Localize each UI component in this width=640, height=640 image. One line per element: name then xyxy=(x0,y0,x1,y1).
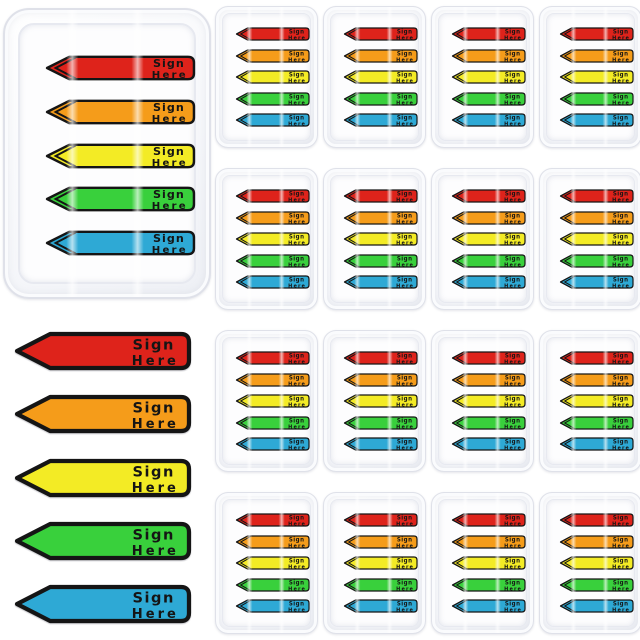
flag-slot: SignHere xyxy=(559,555,635,571)
flag-slot: SignHere xyxy=(451,274,527,290)
dispenser-flags: SignHereSignHereSignHereSignHereSignHere xyxy=(235,512,311,614)
flag-slot: SignHere xyxy=(343,274,419,290)
flag-label-line2: Here xyxy=(504,283,522,289)
flag-label-line2: Here xyxy=(504,402,522,408)
flag-label-line1: Sign xyxy=(397,418,413,424)
sign-here-flag-red: SignHere xyxy=(451,26,527,42)
flag-label-line1: Sign xyxy=(289,51,305,57)
flag-label-line2: Here xyxy=(288,564,306,570)
flag-label-line2: Here xyxy=(132,607,179,622)
sign-here-flag-red: SignHere xyxy=(451,188,527,204)
flag-label-line2: Here xyxy=(396,402,414,408)
flag-slot: SignHere xyxy=(235,253,311,269)
flag-label-line1: Sign xyxy=(289,515,305,521)
dispenser-flags: SignHereSignHereSignHereSignHereSignHere xyxy=(235,350,311,452)
flag-slot: SignHere xyxy=(451,26,527,42)
sign-here-flag-yellow: SignHere xyxy=(559,231,635,247)
flag-label-line1: Sign xyxy=(505,277,521,283)
sign-here-flag-orange: SignHere xyxy=(235,372,311,388)
flag-slot: SignHere xyxy=(235,350,311,366)
flag-slot: SignHere xyxy=(559,26,635,42)
flag-label-line1: Sign xyxy=(289,537,305,543)
flag-label-line1: Sign xyxy=(613,51,629,57)
dispenser-flags: SignHereSignHereSignHereSignHereSignHere xyxy=(235,26,311,128)
flag-label-line2: Here xyxy=(612,121,630,127)
flag-slot: SignHere xyxy=(451,91,527,107)
flag-slot: SignHere xyxy=(451,112,527,128)
flag-slot: SignHere xyxy=(451,555,527,571)
flag-label-line2: Here xyxy=(288,586,306,592)
dispenser-flags: SignHereSignHereSignHereSignHereSignHere xyxy=(235,188,311,290)
flag-label-line1: Sign xyxy=(397,72,413,78)
flag-slot: SignHere xyxy=(343,534,419,550)
flag-label-line2: Here xyxy=(396,262,414,268)
flag-label-line1: Sign xyxy=(613,234,629,240)
flag-slot: SignHere xyxy=(451,512,527,528)
dispenser-flags: SignHereSignHereSignHereSignHereSignHere xyxy=(343,350,419,452)
flag-slot: SignHere xyxy=(235,188,311,204)
flag-slot: SignHere xyxy=(451,48,527,64)
flag-label-line1: Sign xyxy=(153,101,185,114)
dispenser-flags: SignHereSignHereSignHereSignHereSignHere xyxy=(343,26,419,128)
sign-here-flag-green: SignHere xyxy=(559,415,635,431)
flag-label-line1: Sign xyxy=(613,601,629,607)
flag-slot: SignHere xyxy=(235,210,311,226)
sign-here-flag-orange: SignHere xyxy=(559,372,635,388)
flag-label-line1: Sign xyxy=(505,234,521,240)
flag-slot: SignHere xyxy=(559,69,635,85)
flag-label-line2: Here xyxy=(396,35,414,41)
sign-here-flag-orange: SignHere xyxy=(559,48,635,64)
sign-here-flag-orange: SignHere xyxy=(44,97,198,127)
sign-here-flag-blue: SignHere xyxy=(559,598,635,614)
sign-here-flag-red: SignHere xyxy=(451,512,527,528)
flag-label-line1: Sign xyxy=(613,72,629,78)
flag-label-line2: Here xyxy=(288,262,306,268)
flag-label-line2: Here xyxy=(396,586,414,592)
dispenser-flags: SignHereSignHereSignHereSignHereSignHere xyxy=(343,512,419,614)
flag-slot: SignHere xyxy=(44,141,198,171)
flag-label-line1: Sign xyxy=(289,115,305,121)
dispenser-flags: SignHereSignHereSignHereSignHereSignHere xyxy=(559,512,635,614)
sign-here-flag-green: SignHere xyxy=(343,415,419,431)
flag-slot: SignHere xyxy=(343,555,419,571)
flag-slot: SignHere xyxy=(235,512,311,528)
flag-label-line1: Sign xyxy=(613,191,629,197)
dispenser-tray: SignHereSignHereSignHereSignHereSignHere xyxy=(330,13,419,141)
flag-label-line1: Sign xyxy=(289,353,305,359)
flag-label-line1: Sign xyxy=(133,464,175,480)
sign-here-flag-orange: SignHere xyxy=(235,534,311,550)
dispenser-tray: SignHereSignHereSignHereSignHereSignHere xyxy=(438,337,527,465)
flag-label-line1: Sign xyxy=(505,580,521,586)
sign-here-flag-red: SignHere xyxy=(235,512,311,528)
flag-dispenser-box-16: SignHereSignHereSignHereSignHereSignHere xyxy=(539,492,640,634)
flag-slot: SignHere xyxy=(559,393,635,409)
flag-label-line2: Here xyxy=(612,381,630,387)
flag-label-line2: Here xyxy=(504,219,522,225)
flag-label-line1: Sign xyxy=(613,439,629,445)
flag-label-line2: Here xyxy=(504,445,522,451)
flag-slot: SignHere xyxy=(343,253,419,269)
sign-here-flag-red: SignHere xyxy=(343,188,419,204)
sign-here-flag-red: SignHere xyxy=(343,26,419,42)
flag-label-line2: Here xyxy=(504,607,522,613)
dispenser-tray: SignHereSignHereSignHereSignHereSignHere xyxy=(222,175,311,303)
flag-label-line2: Here xyxy=(288,100,306,106)
flag-slot: SignHere xyxy=(44,184,198,214)
flag-dispenser-box-1: SignHereSignHereSignHereSignHereSignHere xyxy=(215,6,318,148)
flag-label-line1: Sign xyxy=(613,537,629,543)
sign-here-flag-blue: SignHere xyxy=(559,274,635,290)
flag-label-line2: Here xyxy=(612,607,630,613)
flag-label-line1: Sign xyxy=(397,191,413,197)
flag-label-line1: Sign xyxy=(397,515,413,521)
flag-slot: SignHere xyxy=(343,393,419,409)
large-dispenser-tray: SignHereSignHereSignHereSignHereSignHere xyxy=(18,23,196,284)
dispenser-flags: SignHereSignHereSignHereSignHereSignHere xyxy=(343,188,419,290)
flag-slot: SignHere xyxy=(559,577,635,593)
flag-label-line2: Here xyxy=(152,114,188,125)
flag-label-line2: Here xyxy=(612,586,630,592)
flag-dispenser-box-5: SignHereSignHereSignHereSignHereSignHere xyxy=(215,168,318,310)
flag-label-line2: Here xyxy=(396,564,414,570)
flag-label-line2: Here xyxy=(612,359,630,365)
flag-label-line1: Sign xyxy=(133,338,175,354)
flag-dispenser-box-4: SignHereSignHereSignHereSignHereSignHere xyxy=(539,6,640,148)
flag-label-line1: Sign xyxy=(133,527,175,543)
flag-label-line2: Here xyxy=(288,78,306,84)
sign-here-flag-yellow: SignHere xyxy=(235,69,311,85)
flag-label-line1: Sign xyxy=(505,418,521,424)
dispenser-flags: SignHereSignHereSignHereSignHereSignHere xyxy=(451,188,527,290)
sign-here-flag-orange: SignHere xyxy=(343,48,419,64)
sign-here-flag-green: SignHere xyxy=(343,253,419,269)
flag-slot: SignHere xyxy=(343,598,419,614)
flag-slot: SignHere xyxy=(235,534,311,550)
flag-slot: SignHere xyxy=(235,26,311,42)
flag-slot: SignHere xyxy=(559,91,635,107)
sign-here-flag-red: SignHere xyxy=(343,512,419,528)
flag-label-line1: Sign xyxy=(505,29,521,35)
flag-label-line1: Sign xyxy=(397,375,413,381)
flag-label-line1: Sign xyxy=(613,29,629,35)
sign-here-flag-blue: SignHere xyxy=(451,598,527,614)
flag-label-line2: Here xyxy=(504,262,522,268)
flag-slot: SignHere xyxy=(559,188,635,204)
flag-slot: SignHere xyxy=(559,48,635,64)
flag-label-line1: Sign xyxy=(613,375,629,381)
flag-label-line1: Sign xyxy=(613,277,629,283)
dispenser-flags: SignHereSignHereSignHereSignHereSignHere xyxy=(451,512,527,614)
flag-label-line2: Here xyxy=(612,197,630,203)
flag-slot: SignHere xyxy=(559,350,635,366)
flag-slot: SignHere xyxy=(235,112,311,128)
flag-label-line2: Here xyxy=(132,354,179,369)
flag-label-line1: Sign xyxy=(397,213,413,219)
flag-dispenser-box-7: SignHereSignHereSignHereSignHereSignHere xyxy=(431,168,534,310)
flag-label-line2: Here xyxy=(288,381,306,387)
flag-label-line2: Here xyxy=(612,521,630,527)
flag-slot: SignHere xyxy=(44,97,198,127)
flag-slot: SignHere xyxy=(559,372,635,388)
flag-label-line2: Here xyxy=(396,543,414,549)
flag-label-line2: Here xyxy=(396,78,414,84)
flag-slot: SignHere xyxy=(235,274,311,290)
dispenser-tray: SignHereSignHereSignHereSignHereSignHere xyxy=(438,13,527,141)
dispenser-flags: SignHereSignHereSignHereSignHereSignHere xyxy=(559,350,635,452)
flag-label-line1: Sign xyxy=(397,115,413,121)
dispenser-tray: SignHereSignHereSignHereSignHereSignHere xyxy=(330,499,419,627)
flag-dispenser-box-2: SignHereSignHereSignHereSignHereSignHere xyxy=(323,6,426,148)
flag-label-line2: Here xyxy=(504,381,522,387)
flag-slot: SignHere xyxy=(559,210,635,226)
sign-here-flag-blue: SignHere xyxy=(235,598,311,614)
flag-slot: SignHere xyxy=(343,415,419,431)
sign-here-flag-yellow: SignHere xyxy=(451,393,527,409)
dispenser-tray: SignHereSignHereSignHereSignHereSignHere xyxy=(330,175,419,303)
flag-label-line2: Here xyxy=(504,564,522,570)
flag-label-line1: Sign xyxy=(153,145,185,158)
flag-slot: SignHere xyxy=(235,415,311,431)
flag-slot: SignHere xyxy=(451,69,527,85)
sign-here-flag-green: SignHere xyxy=(235,91,311,107)
flag-slot: SignHere xyxy=(44,228,198,258)
flag-slot: SignHere xyxy=(343,91,419,107)
loose-sign-here-flag-red: SignHere xyxy=(14,331,193,371)
flag-label-line2: Here xyxy=(288,35,306,41)
flag-label-line2: Here xyxy=(504,121,522,127)
sign-here-flag-yellow: SignHere xyxy=(343,555,419,571)
sign-here-flag-yellow: SignHere xyxy=(235,393,311,409)
flag-label-line2: Here xyxy=(396,57,414,63)
flag-label-line1: Sign xyxy=(613,94,629,100)
flag-label-line2: Here xyxy=(288,402,306,408)
flag-slot: SignHere xyxy=(559,274,635,290)
dispenser-tray: SignHereSignHereSignHereSignHereSignHere xyxy=(546,175,635,303)
flag-label-line2: Here xyxy=(612,240,630,246)
flag-label-line2: Here xyxy=(504,197,522,203)
sign-here-flag-blue: SignHere xyxy=(44,228,198,258)
flag-slot: SignHere xyxy=(343,350,419,366)
flag-label-line1: Sign xyxy=(133,401,175,417)
sign-here-flag-yellow: SignHere xyxy=(343,69,419,85)
flag-label-line2: Here xyxy=(612,564,630,570)
sign-here-flag-green: SignHere xyxy=(451,91,527,107)
sign-here-flag-yellow: SignHere xyxy=(559,69,635,85)
flag-slot: SignHere xyxy=(343,577,419,593)
dispenser-flags: SignHereSignHereSignHereSignHereSignHere xyxy=(451,350,527,452)
flag-dispenser-box-11: SignHereSignHereSignHereSignHereSignHere xyxy=(431,330,534,472)
sign-here-flag-green: SignHere xyxy=(235,577,311,593)
flag-slot: SignHere xyxy=(235,372,311,388)
flag-label-line1: Sign xyxy=(613,353,629,359)
sign-here-flag-green: SignHere xyxy=(44,184,198,214)
sign-here-flag-green: SignHere xyxy=(343,91,419,107)
sign-here-flag-red: SignHere xyxy=(559,512,635,528)
dispenser-flags: SignHereSignHereSignHereSignHereSignHere xyxy=(559,188,635,290)
flag-label-line1: Sign xyxy=(505,256,521,262)
flag-label-line1: Sign xyxy=(289,29,305,35)
sign-here-flag-green: SignHere xyxy=(559,91,635,107)
flag-label-line2: Here xyxy=(288,197,306,203)
loose-sign-here-flag-orange: SignHere xyxy=(14,394,193,434)
flag-slot: SignHere xyxy=(343,436,419,452)
flag-label-line1: Sign xyxy=(153,188,185,201)
flag-label-line1: Sign xyxy=(289,256,305,262)
sign-here-flag-orange: SignHere xyxy=(343,534,419,550)
flag-label-line2: Here xyxy=(288,57,306,63)
sign-here-flag-orange: SignHere xyxy=(235,48,311,64)
flag-label-line2: Here xyxy=(152,202,188,213)
dispenser-tray: SignHereSignHereSignHereSignHereSignHere xyxy=(222,13,311,141)
flag-slot: SignHere xyxy=(235,555,311,571)
flag-label-line2: Here xyxy=(288,521,306,527)
flag-label-line2: Here xyxy=(132,481,179,496)
sign-here-flag-yellow: SignHere xyxy=(451,555,527,571)
flag-label-line2: Here xyxy=(396,607,414,613)
flag-label-line2: Here xyxy=(288,424,306,430)
sign-here-flag-red: SignHere xyxy=(235,188,311,204)
flag-label-line1: Sign xyxy=(153,232,185,245)
flag-dispenser-box-13: SignHereSignHereSignHereSignHereSignHere xyxy=(215,492,318,634)
flag-label-line1: Sign xyxy=(505,72,521,78)
flag-label-line2: Here xyxy=(396,381,414,387)
flag-label-line2: Here xyxy=(396,521,414,527)
sign-here-flag-green: SignHere xyxy=(451,577,527,593)
flag-slot: SignHere xyxy=(559,231,635,247)
flag-label-line2: Here xyxy=(396,100,414,106)
flag-label-line2: Here xyxy=(504,78,522,84)
sign-here-flag-blue: SignHere xyxy=(559,436,635,452)
flag-label-line2: Here xyxy=(612,402,630,408)
flag-label-line2: Here xyxy=(612,262,630,268)
flag-label-line1: Sign xyxy=(505,396,521,402)
flag-label-line2: Here xyxy=(504,543,522,549)
flag-slot: SignHere xyxy=(343,188,419,204)
flag-slot: SignHere xyxy=(235,393,311,409)
sign-here-flag-orange: SignHere xyxy=(343,210,419,226)
loose-sign-here-flag-yellow: SignHere xyxy=(14,458,193,498)
flag-slot: SignHere xyxy=(559,253,635,269)
flag-dispenser-box-10: SignHereSignHereSignHereSignHereSignHere xyxy=(323,330,426,472)
sign-here-flag-blue: SignHere xyxy=(451,274,527,290)
sign-here-flag-blue: SignHere xyxy=(343,598,419,614)
flag-slot: SignHere xyxy=(343,372,419,388)
sign-here-flag-red: SignHere xyxy=(451,350,527,366)
flag-label-line1: Sign xyxy=(289,418,305,424)
dispenser-tray: SignHereSignHereSignHereSignHereSignHere xyxy=(438,499,527,627)
flag-label-line2: Here xyxy=(288,543,306,549)
sign-here-flag-green: SignHere xyxy=(343,577,419,593)
flag-label-line2: Here xyxy=(396,197,414,203)
flag-label-line1: Sign xyxy=(397,537,413,543)
sign-here-flag-blue: SignHere xyxy=(343,112,419,128)
flag-slot: SignHere xyxy=(559,512,635,528)
sign-here-flag-yellow: SignHere xyxy=(451,69,527,85)
flag-slot: SignHere xyxy=(343,69,419,85)
flag-label-line1: Sign xyxy=(505,515,521,521)
sign-here-flag-red: SignHere xyxy=(343,350,419,366)
flag-label-line2: Here xyxy=(288,219,306,225)
flag-dispenser-box-15: SignHereSignHereSignHereSignHereSignHere xyxy=(431,492,534,634)
flag-label-line1: Sign xyxy=(397,94,413,100)
flag-label-line1: Sign xyxy=(397,439,413,445)
flag-label-line2: Here xyxy=(132,417,179,432)
flag-label-line1: Sign xyxy=(289,191,305,197)
sign-here-flag-red: SignHere xyxy=(559,26,635,42)
sign-here-flag-yellow: SignHere xyxy=(235,231,311,247)
flag-label-line1: Sign xyxy=(289,396,305,402)
flag-label-line2: Here xyxy=(504,57,522,63)
flag-slot: SignHere xyxy=(343,26,419,42)
flag-label-line2: Here xyxy=(396,424,414,430)
sign-here-flag-green: SignHere xyxy=(451,415,527,431)
dispenser-tray: SignHereSignHereSignHereSignHereSignHere xyxy=(546,13,635,141)
flag-label-line1: Sign xyxy=(289,601,305,607)
sign-here-flag-blue: SignHere xyxy=(451,112,527,128)
flag-label-line1: Sign xyxy=(505,94,521,100)
sign-here-flag-green: SignHere xyxy=(559,577,635,593)
product-photo: SignHereSignHereSignHereSignHereSignHere… xyxy=(0,0,640,640)
flag-label-line2: Here xyxy=(288,359,306,365)
flag-label-line1: Sign xyxy=(397,234,413,240)
sign-here-flag-orange: SignHere xyxy=(451,534,527,550)
flag-label-line1: Sign xyxy=(289,72,305,78)
flag-label-line1: Sign xyxy=(289,94,305,100)
flag-label-line2: Here xyxy=(504,586,522,592)
loose-sign-here-flag-green: SignHere xyxy=(14,521,193,561)
flag-slot: SignHere xyxy=(343,231,419,247)
dispenser-flags: SignHereSignHereSignHereSignHereSignHere xyxy=(559,26,635,128)
flag-slot: SignHere xyxy=(451,372,527,388)
flag-label-line1: Sign xyxy=(397,353,413,359)
flag-label-line1: Sign xyxy=(505,115,521,121)
flag-label-line1: Sign xyxy=(505,375,521,381)
sign-here-flag-red: SignHere xyxy=(235,26,311,42)
flag-label-line1: Sign xyxy=(289,213,305,219)
flag-slot: SignHere xyxy=(44,53,198,83)
sign-here-flag-red: SignHere xyxy=(559,188,635,204)
sign-here-flag-green: SignHere xyxy=(451,253,527,269)
flag-slot: SignHere xyxy=(451,231,527,247)
flag-dispenser-box-9: SignHereSignHereSignHereSignHereSignHere xyxy=(215,330,318,472)
flag-slot: SignHere xyxy=(451,598,527,614)
loose-sign-here-flag-blue: SignHere xyxy=(14,584,193,624)
flag-slot: SignHere xyxy=(451,188,527,204)
sign-here-flag-blue: SignHere xyxy=(451,436,527,452)
flag-slot: SignHere xyxy=(451,253,527,269)
flag-label-line1: Sign xyxy=(289,375,305,381)
flag-label-line2: Here xyxy=(396,121,414,127)
flag-label-line2: Here xyxy=(612,57,630,63)
sign-here-flag-yellow: SignHere xyxy=(559,555,635,571)
flag-label-line2: Here xyxy=(504,35,522,41)
flag-slot: SignHere xyxy=(343,512,419,528)
flag-label-line1: Sign xyxy=(613,515,629,521)
sign-here-flag-orange: SignHere xyxy=(451,372,527,388)
sign-here-flag-orange: SignHere xyxy=(235,210,311,226)
flag-label-line1: Sign xyxy=(397,277,413,283)
flag-label-line1: Sign xyxy=(505,51,521,57)
sign-here-flag-green: SignHere xyxy=(235,253,311,269)
sign-here-flag-yellow: SignHere xyxy=(235,555,311,571)
sign-here-flag-red: SignHere xyxy=(559,350,635,366)
flag-slot: SignHere xyxy=(559,598,635,614)
flag-label-line2: Here xyxy=(504,521,522,527)
flag-label-line2: Here xyxy=(396,219,414,225)
dispenser-tray: SignHereSignHereSignHereSignHereSignHere xyxy=(330,337,419,465)
